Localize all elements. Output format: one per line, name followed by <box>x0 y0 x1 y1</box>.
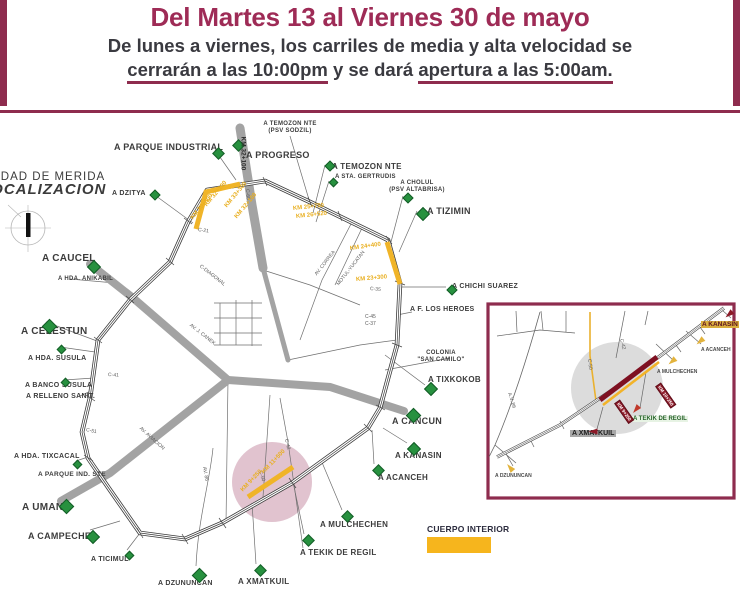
legend-swatch <box>427 537 491 553</box>
road-network-map <box>0 0 740 600</box>
legend: CUERPO INTERIOR <box>427 524 509 553</box>
compass-icon <box>5 205 51 252</box>
road-closure-flyer: Del Martes 13 al Viernes 30 de mayo De l… <box>0 0 740 600</box>
inset-map <box>488 304 734 498</box>
legend-label: CUERPO INTERIOR <box>427 524 509 534</box>
map-title-line2: LOCALIZACION <box>0 181 106 198</box>
